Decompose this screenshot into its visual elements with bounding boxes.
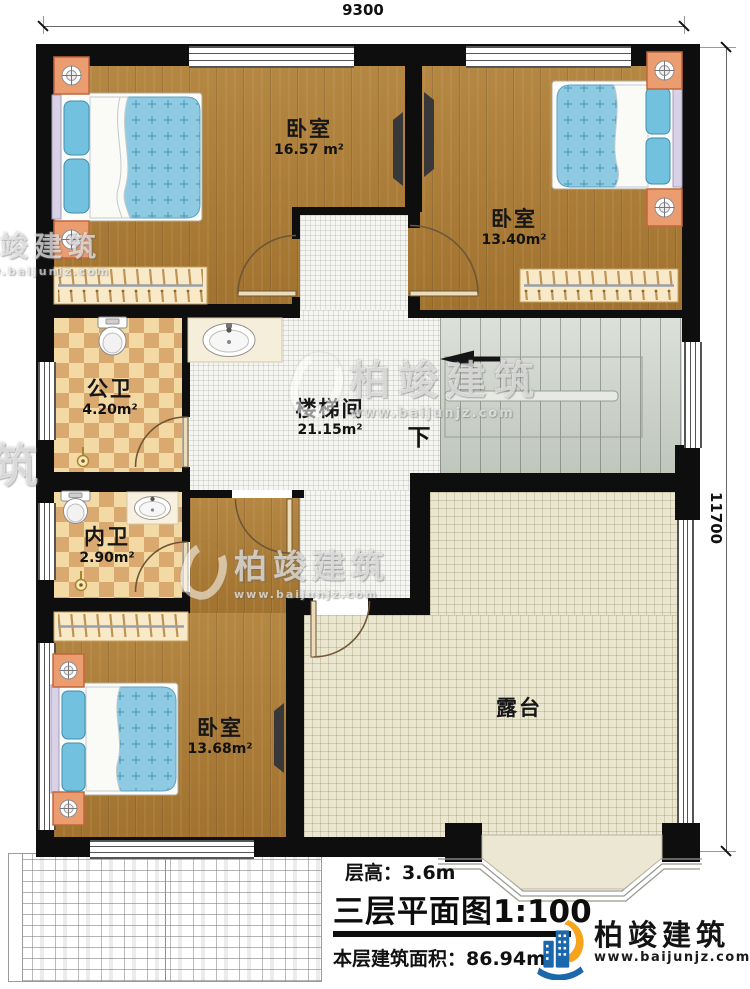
window: [466, 46, 631, 68]
room-area: 16.57 m²: [274, 142, 344, 160]
wall-segment: [408, 296, 420, 310]
wall-segment: [286, 598, 304, 837]
room-area: 21.15m²: [296, 422, 365, 440]
wall-segment: [304, 837, 445, 857]
extension-line: [700, 47, 736, 48]
window: [38, 503, 56, 580]
hall-upper-arm-floor: [300, 215, 408, 310]
room-label-public-bathroom: 公卫 4.20m²: [82, 376, 137, 420]
wall-segment: [408, 212, 420, 228]
extension-line: [700, 851, 736, 852]
room-name: 公卫: [82, 376, 137, 402]
room-label-bedroom-3: 卧室 13.68m²: [187, 715, 252, 759]
window: [38, 362, 56, 440]
room-name: 内卫: [79, 524, 134, 550]
room-name: 卧室: [481, 206, 546, 232]
floor-area-text: 本层建筑面积：86.94m²: [333, 944, 554, 971]
window: [684, 342, 702, 448]
wall-segment: [182, 318, 190, 417]
bedroom3-floor: [54, 613, 300, 837]
stairs-down-label: 下: [408, 418, 431, 452]
wall-segment: [292, 207, 408, 215]
pillar: [662, 823, 700, 862]
window: [38, 643, 56, 830]
brand-logo: 柏竣建筑 www.baijunjz.com: [536, 920, 750, 980]
room-label-terrace: 露台: [496, 695, 542, 721]
dimension-line-right: [726, 47, 727, 851]
wall-segment: [292, 490, 304, 498]
room-label-bedroom-2: 卧室 13.40m²: [481, 206, 546, 250]
wall-segment: [682, 44, 700, 342]
terrace-railing: [677, 520, 694, 823]
floor-height-text: 层高：3.6m: [345, 858, 455, 885]
room-area: 13.40m²: [481, 232, 546, 250]
room-label-inner-bathroom: 内卫 2.90m²: [79, 524, 134, 568]
room-name: 卧室: [274, 116, 344, 142]
pillar: [675, 445, 700, 520]
stairs-floor: [440, 318, 682, 473]
room-name: 露台: [496, 695, 542, 721]
room-area: 13.68m²: [187, 741, 252, 759]
floor-plan-canvas: 卧室 16.57 m² 卧室 13.40m² 公卫 4.20m² 楼梯间 21.…: [0, 0, 750, 989]
plan-title-text: 三层平面图: [333, 894, 493, 930]
room-label-stairwell: 楼梯间 21.15m²: [296, 396, 365, 440]
brand-name: 柏竣建筑: [594, 920, 750, 950]
wall-segment: [36, 472, 190, 492]
bedroom3-entry-floor: [190, 498, 300, 613]
brand-website: www.baijunjz.com: [594, 950, 750, 965]
wall-segment: [190, 490, 232, 498]
room-area: 2.90m²: [79, 550, 134, 568]
pillar: [445, 823, 482, 862]
wall-segment: [405, 66, 422, 212]
wall-segment: [292, 215, 300, 239]
dimension-line-top: [43, 26, 684, 27]
dimension-height-label: 11700: [707, 488, 725, 548]
window: [189, 46, 354, 68]
wall-segment: [410, 473, 430, 615]
window: [90, 840, 254, 859]
wall-segment: [300, 598, 313, 615]
room-label-bedroom-1: 卧室 16.57 m²: [274, 116, 344, 160]
room-name: 卧室: [187, 715, 252, 741]
terrace-floor-upper: [430, 492, 688, 615]
room-area: 4.20m²: [82, 402, 137, 420]
terrace-floor-main: [304, 615, 688, 837]
wall-segment: [430, 473, 682, 492]
wall-segment: [182, 492, 190, 542]
wall-segment: [36, 304, 300, 318]
hall-lower-stem-floor: [300, 490, 410, 598]
dimension-width-label: 9300: [333, 1, 393, 19]
roof-tiles-below: [8, 853, 322, 982]
brand-logo-icon: [536, 920, 588, 980]
room-name: 楼梯间: [296, 396, 365, 422]
wall-segment: [36, 598, 190, 613]
wall-segment: [408, 310, 682, 318]
